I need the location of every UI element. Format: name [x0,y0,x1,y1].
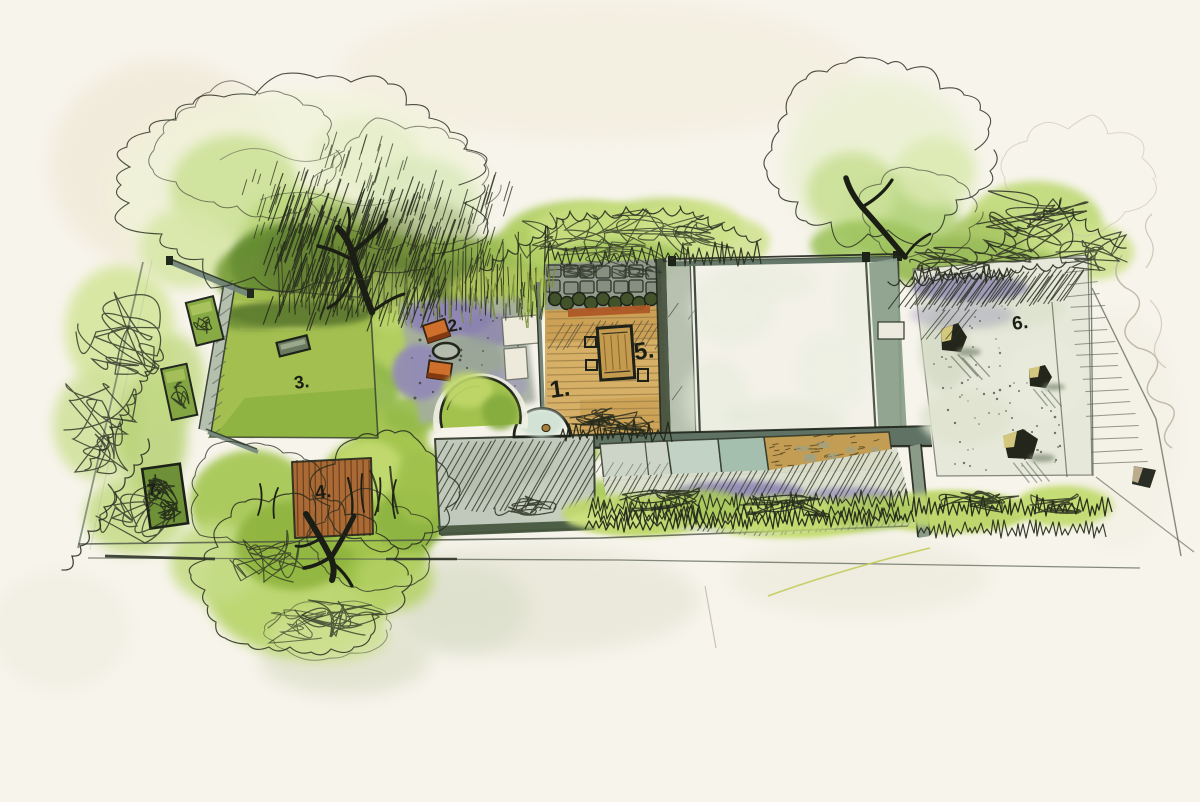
svg-text:6.: 6. [1011,312,1030,335]
svg-text:5.: 5. [632,336,656,366]
svg-text:1.: 1. [548,374,572,404]
svg-text:7.: 7. [146,479,163,500]
svg-text:3.: 3. [293,371,311,393]
svg-text:4.: 4. [314,481,333,504]
